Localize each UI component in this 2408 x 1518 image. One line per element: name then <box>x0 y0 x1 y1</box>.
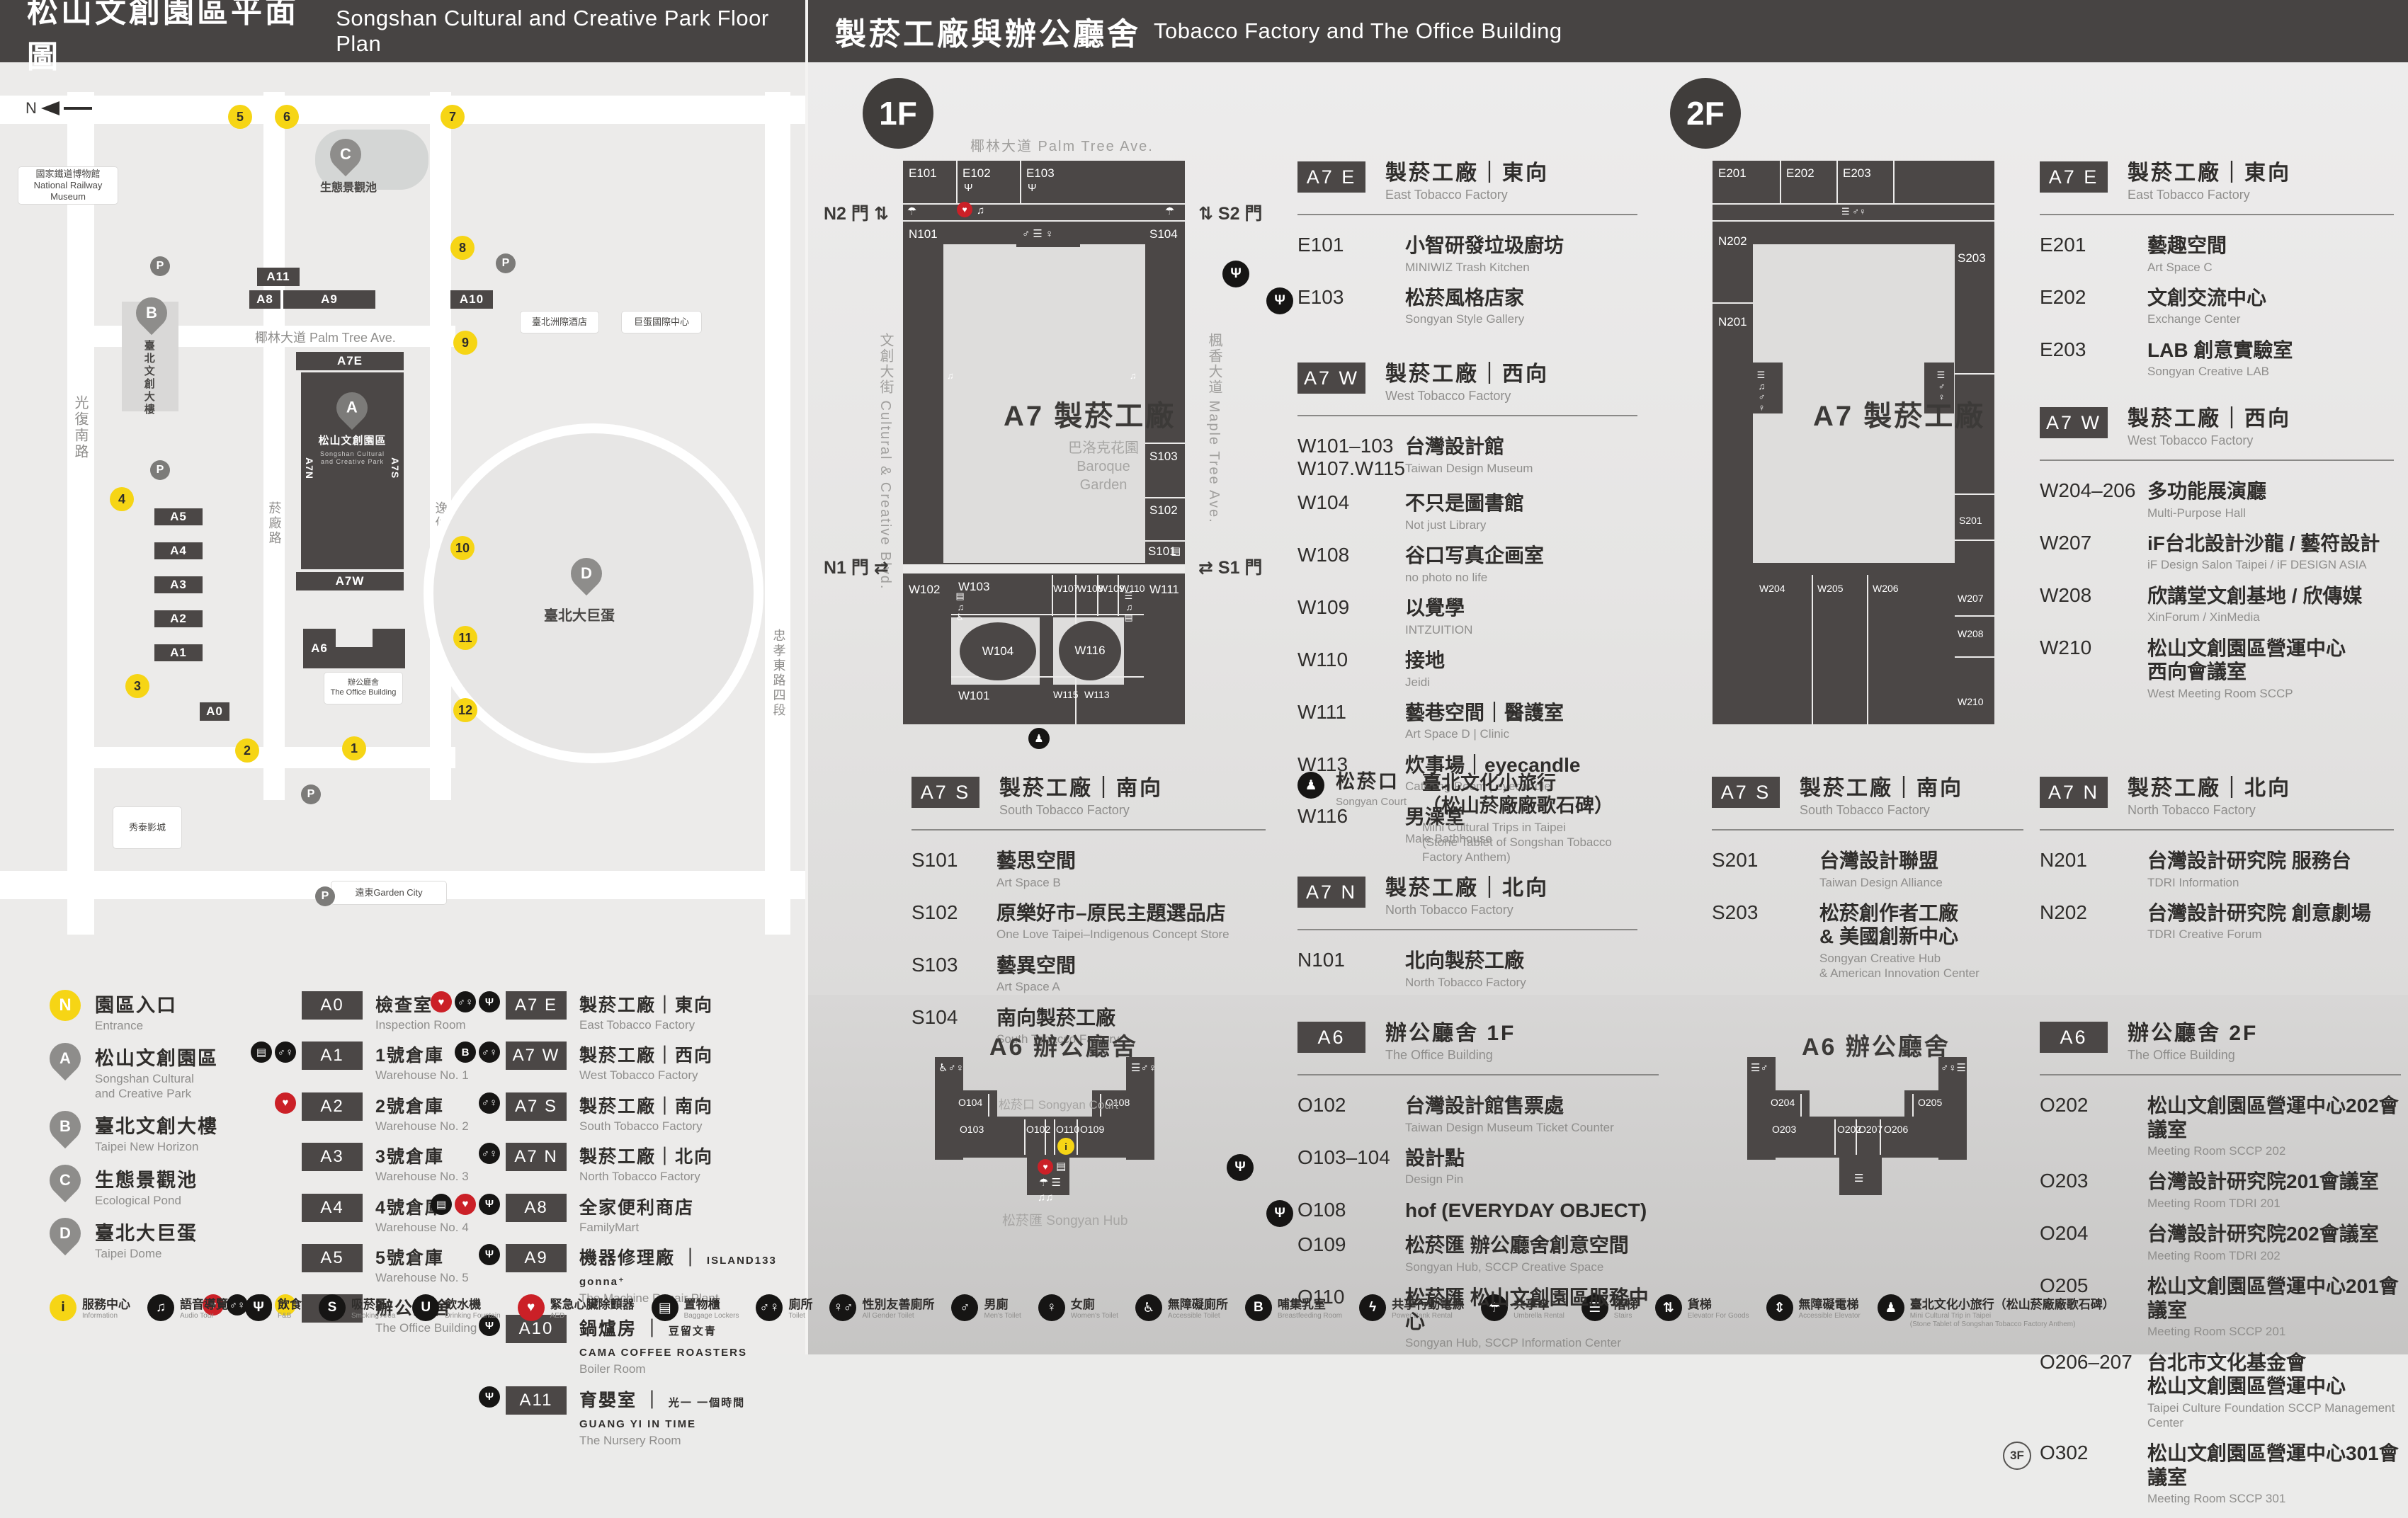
facility-en: AED <box>550 1312 635 1320</box>
facility-legend: i服務中心Information♫語音導覽Audio TourΨ飲食F&BS吸菸… <box>50 1294 2387 1329</box>
baggage-lockers-icon: ▤ <box>431 1194 452 1215</box>
room-name-zh: 多功能展演廳 <box>2147 479 2266 503</box>
toilet-icon: ♂♀ <box>275 1042 296 1063</box>
room-name-en: Taiwan Design Alliance <box>1819 875 1943 890</box>
room-row: W110接地Jeidi <box>1297 649 1637 690</box>
room-row: N202台灣設計研究院 創意劇場TDRI Creative Forum <box>2040 901 2394 942</box>
floor-3f-marker: 3F <box>2003 1442 2031 1470</box>
room-code: O108 <box>1297 1199 1405 1221</box>
room-code: E202 <box>2040 286 2147 309</box>
room-row: W108谷口写真企画室no photo no life <box>1297 544 1637 585</box>
fnb-icon: Ψ <box>479 1386 500 1408</box>
legend-en: The Nursery Room <box>579 1434 745 1448</box>
room-code: E203 <box>2040 338 2147 361</box>
legend-zh: 機器修理廠 ｜ ISLAND133 gonna⁺ <box>579 1244 807 1290</box>
room-label: S104 <box>1149 227 1178 241</box>
room-row: W109以覺學INTZUITION <box>1297 596 1637 637</box>
legend-zh: 臺北文創大樓 <box>95 1111 218 1138</box>
poi-dome-center: 巨蛋國際中心 <box>622 312 701 333</box>
room-label: O204 <box>1771 1097 1795 1108</box>
legend-code-box: A9 <box>506 1244 567 1272</box>
legend-code-box: A7 W <box>506 1042 567 1070</box>
facility-zh: 吸菸區 <box>351 1294 395 1312</box>
room-name-en: Art Space D | Clinic <box>1405 726 1564 741</box>
facility-zh: 語音導覽 <box>180 1294 228 1312</box>
room-row: O102台灣設計館售票處Taiwan Design Museum Ticket … <box>1297 1094 1659 1135</box>
room-name-zh: 台灣設計研究院202會議室 <box>2147 1222 2379 1246</box>
north-arrow: N <box>25 99 92 118</box>
entrance-1: 1 <box>342 736 366 760</box>
facility-womens-toilet: ♀女廁Women's Toilet <box>1038 1294 1118 1321</box>
room-name-en: Songyan Hub, SCCP Information Center <box>1405 1335 1659 1350</box>
legend-row-icons: ♥ <box>228 1092 302 1114</box>
legend-row-a8: ▤♥ΨA8全家便利商店FamilyMart <box>432 1194 807 1235</box>
songyan-court-label: 松菸口 Songyan Court <box>999 1097 1118 1113</box>
facility-information: i服務中心Information <box>50 1294 130 1321</box>
room-label: O206 <box>1884 1124 1908 1135</box>
section-code: A7 W <box>1297 363 1365 394</box>
legend-row-icons: ♂♀ <box>432 1143 506 1164</box>
room-code: W110 <box>1297 649 1405 671</box>
room-code: O110 <box>1297 1286 1405 1308</box>
stairs-icon: ☰ ♂♀ <box>1841 206 1866 217</box>
north-arrow-icon <box>41 101 59 115</box>
umbrella-icon: ☂ <box>1165 205 1174 217</box>
toilet-icon: ♂♀ <box>756 1294 783 1321</box>
section-code: A7 S <box>1712 777 1780 808</box>
legend-en: West Tobacco Factory <box>579 1068 713 1083</box>
facility-zh: 飲水機 <box>445 1294 500 1312</box>
smoking-area-icon: S <box>319 1294 346 1321</box>
room-label: S203 <box>1958 251 1986 266</box>
room-label: O103 <box>960 1124 984 1135</box>
room-row: S102原樂好市–原民主題選品店One Love Taipei–Indigeno… <box>911 901 1266 942</box>
aed-icon: ♥ <box>275 1092 296 1114</box>
room-name-zh: 松山文創園區營運中心202會議室 <box>2147 1094 2401 1141</box>
map-side-a7s: A7S <box>390 457 401 479</box>
room-label: N101 <box>909 227 938 241</box>
room-name-en: Exchange Center <box>2147 312 2266 326</box>
room-code: O202 <box>2040 1094 2147 1117</box>
toilet-icon: ♂♀☰ <box>1941 1061 1966 1074</box>
facility-fnb: Ψ飲食F&B <box>245 1294 302 1321</box>
road-yixian <box>430 92 451 800</box>
road-south-inner <box>94 747 455 768</box>
room-name-en: Songyan Creative Hub & American Innovati… <box>1819 951 1980 981</box>
legend-zh: 製菸工廠｜南向 <box>579 1092 713 1118</box>
room-name-en: Art Space C <box>2147 260 2227 275</box>
room-name-en: TDRI Information <box>2147 875 2351 890</box>
room-label: N202 <box>1718 234 1747 249</box>
room-row: O203台灣設計研究院201會議室Meeting Room TDRI 201 <box>2040 1170 2401 1211</box>
room-code: O204 <box>2040 1222 2147 1245</box>
facility-accessible-toilet: ♿無障礙廁所Accessible Toilet <box>1135 1294 1228 1321</box>
room-label: O109 <box>1080 1124 1104 1135</box>
room-name-en: Meeting Room TDRI 202 <box>2147 1248 2379 1263</box>
room-label: E203 <box>1843 166 1871 181</box>
room-code: W207 <box>2040 532 2147 554</box>
room-name-zh: 欣講堂文創基地 / 欣傳媒 <box>2147 584 2362 608</box>
map-a6-label: 辦公廳舍 The Office Building <box>324 673 402 704</box>
room-name-zh: 松山文創園區營運中心301會議室 <box>2147 1442 2401 1489</box>
legend-zh: 製菸工廠｜北向 <box>579 1143 713 1168</box>
room-row: O205松山文創園區營運中心201會議室Meeting Room SCCP 20… <box>2040 1274 2401 1339</box>
section-a6-2f: A6 辦公廳舍 2FThe Office Building O202松山文創園區… <box>2040 1022 2401 1518</box>
street-maple-1f: 楓香大道 Maple Tree Ave. <box>1204 333 1225 524</box>
room-name-en: XinForum / XinMedia <box>2147 610 2362 624</box>
legend-row-icons: B♂♀ <box>432 1042 506 1063</box>
accessible-toilet-icon: ♿♂♀ <box>938 1061 964 1074</box>
room-row: W111藝巷空間｜醫護室Art Space D | Clinic <box>1297 701 1637 742</box>
map-block-a7: A 松山文創園區 Songshan Cultural and Creative … <box>301 372 404 569</box>
map-block-a6-right <box>373 629 405 668</box>
fnb-icon: Ψ <box>245 1294 272 1321</box>
parking-icon: P <box>496 253 516 273</box>
facility-cluster-icon: ☰♫▤ <box>1124 591 1135 623</box>
stairs-icon: ☰♂ <box>1751 1061 1768 1074</box>
section-code: A6 <box>1297 1022 1365 1053</box>
poi-railway-museum: 國家鐵道博物館 National Railway Museum <box>18 167 118 204</box>
room-name-en: Art Space A <box>996 979 1076 994</box>
room-name-zh: 北向製菸工廠 <box>1405 949 1526 973</box>
legend-point-A: A松山文創園區Songshan Cultural and Creative Pa… <box>50 1043 227 1101</box>
facility-all-gender-toilet: ♀♂性別友善廁所All Gender Toilet <box>829 1294 934 1321</box>
road-yanchang <box>263 92 285 800</box>
fnb-icon: Ψ <box>964 182 973 194</box>
room-name-zh: iF台北設計沙龍 / 藝符設計 <box>2147 532 2380 556</box>
room-code: E201 <box>2040 234 2147 256</box>
room-label: O110 <box>1056 1124 1079 1135</box>
legend-zh: 松山文創園區 <box>95 1043 218 1071</box>
gate-n1: N1 門 ⇄ <box>824 554 889 579</box>
room-code: O205 <box>2040 1274 2147 1297</box>
room-w104-oval: W104 <box>960 622 1036 680</box>
room-name-en: Not just Library <box>1405 518 1524 532</box>
room-name-en: Meeting Room SCCP 301 <box>2147 1491 2401 1506</box>
legend-zh: 製菸工廠｜東向 <box>579 991 713 1017</box>
room-row: W208欣講堂文創基地 / 欣傳媒XinForum / XinMedia <box>2040 584 2394 625</box>
entrance-11: 11 <box>453 626 477 650</box>
entrance-5: 5 <box>228 105 252 129</box>
legend-en: Ecological Pond <box>95 1194 198 1208</box>
poi-new-horizon-label: 臺北文創大樓 <box>142 340 155 416</box>
room-name-zh: 藝思空間 <box>996 849 1076 873</box>
road-guangfu <box>67 92 94 935</box>
section-code: A7 N <box>2040 777 2108 808</box>
room-name-zh: 台灣設計研究院201會議室 <box>2147 1170 2379 1194</box>
room-row: E101小智研發垃圾廚坊MINIWIZ Trash Kitchen <box>1297 234 1637 275</box>
map-block-a8: A8 <box>249 290 280 309</box>
facility-en: Women's Toilet <box>1071 1312 1118 1320</box>
room-name-en: Taiwan Design Museum <box>1405 461 1533 476</box>
facility-mens-toilet: ♂男廁Men's Toilet <box>951 1294 1021 1321</box>
legend-row-icons: ♥♂♀Ψ <box>432 991 506 1012</box>
facility-en: F&B <box>278 1312 302 1320</box>
room-name-en: West Meeting Room SCCP <box>2147 686 2346 701</box>
stairs-icon: ☰ <box>1854 1172 1863 1185</box>
legend-code-box: A1 <box>302 1042 363 1070</box>
toilet-icon: ♂♀ <box>479 1042 500 1063</box>
room-name-zh: 台灣設計館 <box>1405 435 1533 459</box>
road-zhongxiao <box>765 92 790 935</box>
legend-point-D: D臺北大巨蛋Taipei Dome <box>50 1218 227 1261</box>
room-name-en: Design Pin <box>1405 1172 1465 1187</box>
room-row: S101藝思空間Art Space B <box>911 849 1266 890</box>
park-map: N 光復南路 菸廠路 逸仙路 椰林大道 Palm Tree Ave. 忠孝東路四… <box>0 62 805 984</box>
womens-toilet-icon: ♀ <box>1038 1294 1065 1321</box>
room-row: W101–103 W107.W115台灣設計館Taiwan Design Mus… <box>1297 435 1637 480</box>
facility-en: Drinking Fountain <box>445 1312 500 1320</box>
entrance-3: 3 <box>125 674 149 698</box>
facility-zh: 飲食 <box>278 1294 302 1312</box>
map-block-a7e: A7E <box>296 352 404 370</box>
audio-tour-icon: ♫ <box>947 370 954 381</box>
aed-icon: ♥ <box>1038 1159 1053 1175</box>
room-name-zh: 文創交流中心 <box>2147 286 2266 310</box>
room-row: O109松菸匯 辦公廳舍創意空間Songyan Hub, SCCP Creati… <box>1297 1233 1659 1274</box>
room-row: E203LAB 創意實驗室Songyan Creative LAB <box>2040 338 2394 379</box>
room-name-zh: 藝異空間 <box>996 954 1076 978</box>
facility-zh: 性別友善廁所 <box>862 1294 934 1312</box>
page-title-right-en: Tobacco Factory and The Office Building <box>1154 18 1562 44</box>
room-name-en: North Tobacco Factory <box>1405 975 1526 990</box>
legend-code-box: A7 E <box>506 991 567 1020</box>
map-block-a9: A9 <box>283 290 375 309</box>
mini-cultural-trip-icon: ♟ <box>1028 728 1050 749</box>
room-code: S101 <box>911 849 996 872</box>
map-block-a0: A0 <box>200 702 229 721</box>
facility-en: Men's Toilet <box>984 1312 1021 1320</box>
aed-icon: ♥ <box>957 202 972 217</box>
room-row: S203松菸創作者工廠 & 美國創新中心Songyan Creative Hub… <box>1712 901 2023 981</box>
poi-intercontinental: 臺北洲際酒店 <box>521 312 598 333</box>
room-label: W101 <box>958 689 989 703</box>
room-row: O110松菸匯 松山文創園區服務中心Songyan Hub, SCCP Info… <box>1297 1286 1659 1350</box>
room-name-zh: 小智研發垃圾廚坊 <box>1405 234 1564 258</box>
room-code: N201 <box>2040 849 2147 872</box>
street-palm-map: 椰林大道 Palm Tree Ave. <box>255 330 396 346</box>
facility-en: Information <box>82 1312 130 1320</box>
room-name-zh: 松菸匯 松山文創園區服務中心 <box>1405 1286 1659 1333</box>
audio-tour-icon: ♫ <box>977 205 984 217</box>
facility-aed: ♥緊急心臟除顫器AED <box>518 1294 635 1321</box>
facility-en: Baggage Lockers <box>684 1312 739 1320</box>
facility-drinking-fountain: U飲水機Drinking Fountain <box>412 1294 500 1321</box>
street-guangfu: 光復南路 <box>71 395 89 460</box>
room-name-zh: 松山文創園區營運中心201會議室 <box>2147 1274 2401 1322</box>
room-label: O205 <box>1918 1097 1942 1108</box>
legend-point-C: C生態景觀池Ecological Pond <box>50 1165 227 1208</box>
legend-zh: 園區入口 <box>95 990 177 1017</box>
facility-cluster-icon: ▤♫♿ <box>955 591 966 623</box>
map-block-a10: A10 <box>450 290 493 309</box>
pin-a: A <box>330 386 374 430</box>
legend-row-icons: ▤♥Ψ <box>432 1194 506 1215</box>
room-row: ΨE103松菸風格店家Songyan Style Gallery <box>1297 286 1637 327</box>
room-name-en: Jeidi <box>1405 675 1445 690</box>
section-code: A7 E <box>2040 161 2108 193</box>
room-row: O202松山文創園區營運中心202會議室Meeting Room SCCP 20… <box>2040 1094 2401 1158</box>
gate-n2: N2 門 ⇅ <box>824 200 889 225</box>
legend-zh: 臺北大巨蛋 <box>95 1218 198 1245</box>
legend-code-box: A8 <box>506 1194 567 1222</box>
room-label: W111 <box>1149 583 1179 597</box>
fnb-icon: Ψ <box>1028 182 1037 194</box>
room-name-en: iF Design Salon Taipei / iF DESIGN ASIA <box>2147 557 2380 572</box>
room-label: W206 <box>1873 583 1899 594</box>
facility-zh: 無障礙廁所 <box>1168 1294 1228 1312</box>
facility-en: Accessible Elevator <box>1799 1312 1861 1320</box>
street-cultural-1f: 文創大街 Cultural & Creative Blvd. <box>875 333 896 590</box>
legend-code-box: A0 <box>302 991 363 1020</box>
room-row: W204–206多功能展演廳Multi-Purpose Hall <box>2040 479 2394 520</box>
pin-a-icon: A <box>43 1037 87 1080</box>
room-name-en: Taipei Culture Foundation SCCP Managemen… <box>2147 1400 2401 1431</box>
room-label: E103 <box>1026 166 1055 181</box>
breastfeeding-room-icon: B <box>455 1042 476 1063</box>
room-row: W207iF台北設計沙龍 / 藝符設計iF Design Salon Taipe… <box>2040 532 2394 573</box>
facility-zh: 服務中心 <box>82 1294 130 1312</box>
header-right: 製菸工廠與辦公廳舍 Tobacco Factory and The Office… <box>808 0 2408 62</box>
room-name-zh: 以覺學 <box>1405 596 1472 620</box>
map-block-a6-left: A6 <box>303 629 336 668</box>
facility-en: Smoking Area <box>351 1312 395 1320</box>
room-name-zh: 台北市文化基金會 松山文創園區營運中心 <box>2147 1351 2401 1398</box>
section-a7n-1f: A7 N 製菸工廠｜北向North Tobacco Factory N101北向… <box>1297 877 1637 1001</box>
room-name-en: Meeting Room SCCP 202 <box>2147 1143 2401 1158</box>
room-name-zh: 設計點 <box>1405 1146 1465 1170</box>
legend-en: North Tobacco Factory <box>579 1170 713 1184</box>
fnb-icon: Ψ <box>479 1194 500 1215</box>
room-name-zh: LAB 創意實驗室 <box>2147 338 2293 363</box>
poi-pond-label: 生態景觀池 <box>320 181 377 195</box>
room-w116-oval: W116 <box>1059 621 1121 680</box>
facility-zh: 置物櫃 <box>684 1294 739 1312</box>
page-title-left-en: Songshan Cultural and Creative Park Floo… <box>336 6 805 57</box>
room-name-en: Multi-Purpose Hall <box>2147 506 2266 520</box>
room-row: W210松山文創園區營運中心 西向會議室West Meeting Room SC… <box>2040 637 2394 701</box>
facility-toilet: ♂♀廁所Toilet <box>756 1294 812 1321</box>
room-row: S103藝異空間Art Space A <box>911 954 1266 995</box>
legend-en: FamilyMart <box>579 1221 694 1235</box>
room-row: S201台灣設計聯盟Taiwan Design Alliance <box>1712 849 2023 890</box>
facility-zh: 男廁 <box>984 1294 1021 1312</box>
section-code: A6 <box>2040 1022 2108 1053</box>
room-row: ΨO108hof (EVERYDAY OBJECT) <box>1297 1199 1659 1223</box>
audio-tour-icon: ♫ <box>147 1294 174 1321</box>
room-name-zh: 藝巷空間｜醫護室 <box>1405 701 1564 725</box>
legend-code-box: A4 <box>302 1194 363 1222</box>
room-row: W104不只是圖書館Not just Library <box>1297 491 1637 532</box>
room-name-zh: 台灣設計研究院 創意劇場 <box>2147 901 2371 925</box>
entrance-icon: N <box>50 990 81 1021</box>
room-code: E103 <box>1297 286 1405 309</box>
legend-point-B: B臺北文創大樓Taipei New Horizon <box>50 1111 227 1154</box>
facility-en: Accessible Toilet <box>1168 1312 1228 1320</box>
section-a7s-2f: A7 S 製菸工廠｜南向South Tobacco Factory S201台灣… <box>1712 777 2023 993</box>
room-label: W204 <box>1759 583 1785 594</box>
legend-en: Songshan Cultural and Creative Park <box>95 1072 218 1101</box>
fnb-icon: Ψ <box>1266 287 1293 314</box>
entrance-7: 7 <box>441 105 465 129</box>
legend-row-a7s: ♂♀A7 S製菸工廠｜南向South Tobacco Factory <box>432 1092 807 1134</box>
parking-icon: P <box>150 256 170 276</box>
section-code: A7 E <box>1297 161 1365 193</box>
legend-points: N園區入口EntranceA松山文創園區Songshan Cultural an… <box>50 990 227 1271</box>
room-row: E201藝趣空間Art Space C <box>2040 234 2394 275</box>
facility-cluster-icon: ☰♫♂♀ <box>1756 370 1767 413</box>
legend-en: East Tobacco Factory <box>579 1018 713 1032</box>
plan-title-1f: A7 製菸工廠 <box>1004 393 1176 434</box>
pin-d-icon: D <box>43 1211 87 1255</box>
legend-zh: 全家便利商店 <box>579 1194 694 1219</box>
room-code: W108 <box>1297 544 1405 566</box>
room-name-zh: 松菸創作者工廠 & 美國創新中心 <box>1819 901 1980 949</box>
room-name-en: One Love Taipei–Indigenous Concept Store <box>996 927 1229 942</box>
accessible-toilet-icon: ♿ <box>1135 1294 1162 1321</box>
room-label: N201 <box>1718 315 1747 329</box>
room-code: E101 <box>1297 234 1405 256</box>
map-block-a2: A2 <box>154 610 203 627</box>
baggage-lockers-icon: ▤ <box>1171 544 1181 557</box>
office-2f-plan-title: A6 辦公廳舍 <box>1802 1027 1950 1062</box>
room-code: O206–207 <box>2040 1351 2147 1374</box>
legend-code-box: A7 N <box>506 1143 567 1171</box>
room-code: S203 <box>1712 901 1819 924</box>
room-name-zh: 台灣設計聯盟 <box>1819 849 1943 873</box>
room-label: W115 <box>1053 689 1079 700</box>
room-name-en: Songyan Style Gallery <box>1405 312 1524 326</box>
section-code: A7 S <box>911 777 979 808</box>
audio-tour-icon: ♫♫ <box>1038 1192 1054 1204</box>
map-block-a4: A4 <box>154 542 203 559</box>
accessible-elevator-icon: ⇕ <box>1766 1294 1793 1321</box>
facility-accessible-elevator: ⇕無障礙電梯Accessible Elevator <box>1766 1294 1861 1321</box>
legend-row-a11: ΨA11育嬰室 ｜ 光一 一個時間 GUANG YI IN TIMEThe Nu… <box>432 1386 807 1448</box>
map-block-a5: A5 <box>154 508 203 525</box>
floor-2f-plan: E201 E202 E203 N202 N201 S203 S201 W204 … <box>1713 161 1994 724</box>
room-code: W210 <box>2040 637 2147 659</box>
room-label: W208 <box>1958 628 1984 639</box>
room-label: W207 <box>1958 593 1984 604</box>
office-1f-plan: A6 辦公廳舍 O104 O103 O102 O110 O109 O108 松菸… <box>931 1023 1158 1235</box>
toilet-icon: ♂ ☰ ♀ <box>1022 227 1053 240</box>
toilet-icon: ♂♀ <box>455 991 476 1012</box>
legend-row-a7e: ♥♂♀ΨA7 E製菸工廠｜東向East Tobacco Factory <box>432 991 807 1032</box>
audio-tour-icon: ♫ <box>1130 370 1137 381</box>
mini-cultural-trip-icon: ♟ <box>1878 1294 1904 1321</box>
room-code: W204–206 <box>2040 479 2147 502</box>
legend-row-a7n: ♂♀A7 N製菸工廠｜北向North Tobacco Factory <box>432 1143 807 1184</box>
poi-showtimes: 秀泰影城 <box>113 807 181 848</box>
floor-2f-badge: 2F <box>1670 78 1741 149</box>
room-label: O207 <box>1858 1124 1882 1135</box>
facility-smoking-area: S吸菸區Smoking Area <box>319 1294 395 1321</box>
room-label: E102 <box>962 166 991 181</box>
room-code: S103 <box>911 954 996 976</box>
room-name-zh: 台灣設計館售票處 <box>1405 1094 1614 1118</box>
room-name-en: Meeting Room TDRI 201 <box>2147 1196 2379 1211</box>
entrance-12: 12 <box>453 698 477 722</box>
room-name-en: no photo no life <box>1405 570 1544 585</box>
room-row: 3FO302松山文創園區營運中心301會議室Meeting Room SCCP … <box>2040 1442 2401 1506</box>
street-zhongxiao: 忠孝東路四段 <box>771 629 787 718</box>
breastfeeding-room-icon: B <box>1245 1294 1272 1321</box>
legend-point-N: N園區入口Entrance <box>50 990 227 1033</box>
legend-en: Taipei New Horizon <box>95 1140 218 1154</box>
fnb-icon: Ψ <box>1227 1154 1254 1181</box>
umbrella-icon: ☂ <box>907 205 916 217</box>
